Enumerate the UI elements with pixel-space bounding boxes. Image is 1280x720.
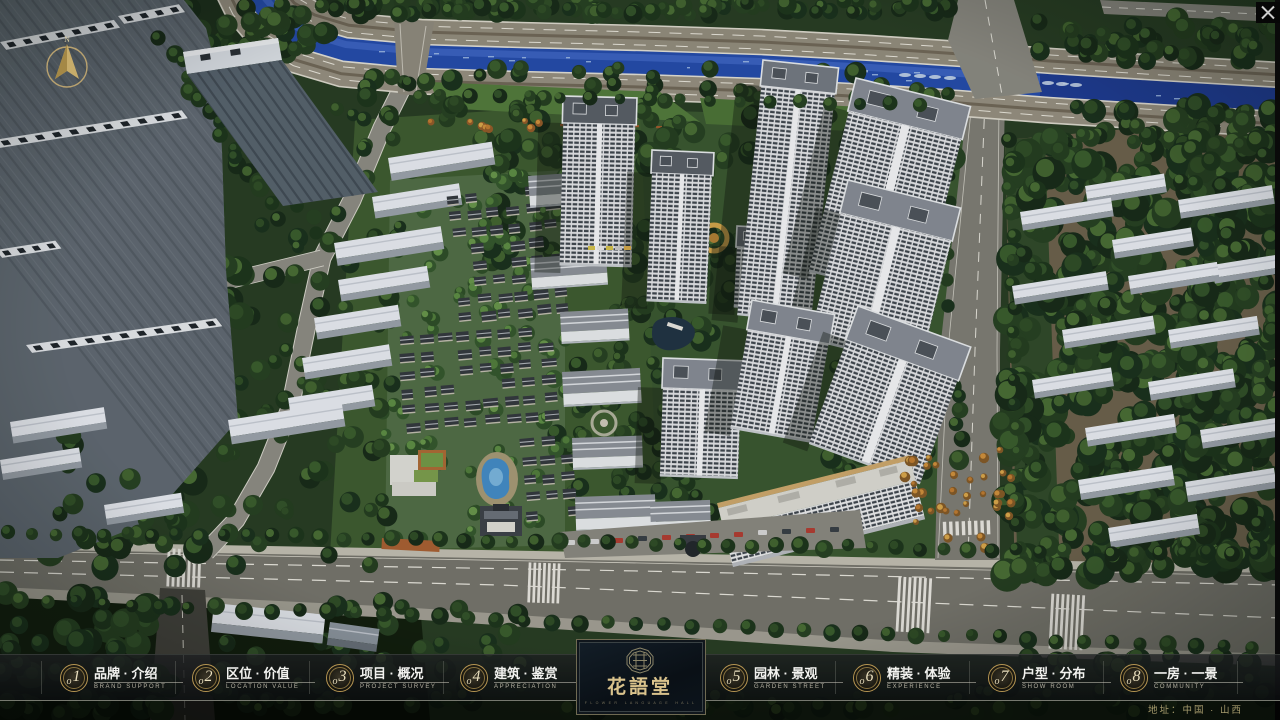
svg-text:花語堂: 花語堂 (607, 675, 673, 698)
svg-text:F L O W E R L A N G U A G E: F L O W E R L A N G U A G E H A L L (585, 701, 696, 705)
svg-text:N: N (64, 35, 70, 44)
